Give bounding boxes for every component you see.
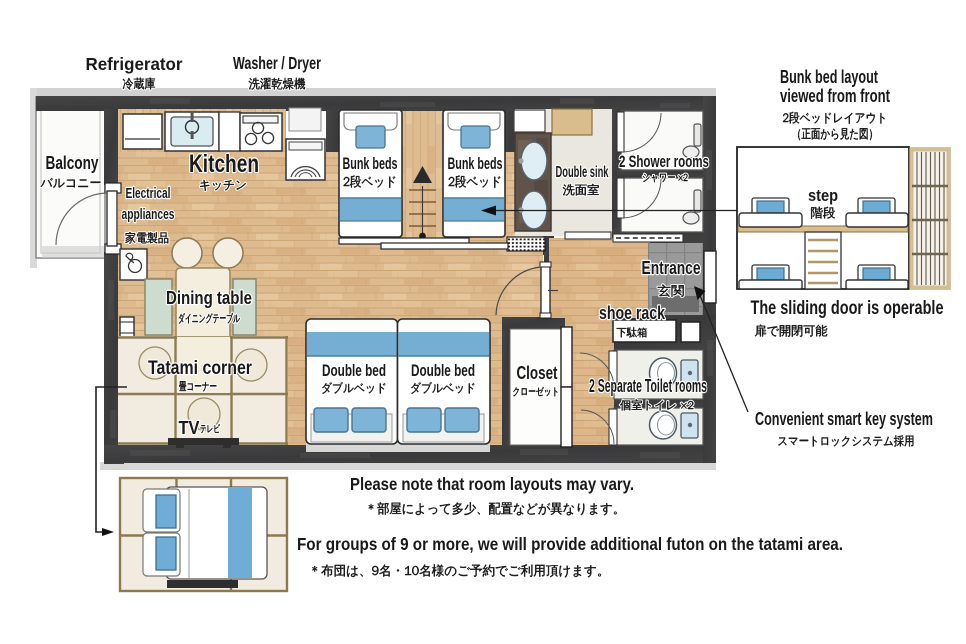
svg-text:Dining table: Dining table [166, 288, 252, 308]
svg-text:Convenient smart key system: Convenient smart key system [755, 409, 933, 429]
svg-text:The sliding door is operable: The sliding door is operable [751, 298, 944, 319]
svg-text:Double sink: Double sink [556, 164, 609, 181]
svg-text:Bunk beds: Bunk beds [343, 154, 398, 173]
svg-text:shoe rack: shoe rack [599, 303, 666, 323]
svg-text:Please note that room layouts: Please note that room layouts may vary. [350, 474, 634, 494]
svg-text:Double bed: Double bed [322, 361, 386, 380]
svg-text:Balcony: Balcony [46, 153, 99, 173]
svg-text:2 Separate Toilet rooms: 2 Separate Toilet rooms [589, 376, 707, 396]
svg-text:2 Shower rooms: 2 Shower rooms [619, 153, 709, 171]
svg-text:For groups of 9 or more, we wi: For groups of 9 or more, we will provide… [297, 534, 843, 554]
svg-text:Electrical: Electrical [126, 186, 171, 202]
svg-text:appliances: appliances [122, 207, 175, 223]
svg-text:TV: TV [179, 418, 200, 438]
svg-text:Entrance: Entrance [642, 258, 701, 278]
svg-text:Closet: Closet [517, 363, 558, 383]
svg-text:Bunk beds: Bunk beds [448, 154, 503, 173]
svg-text:Double bed: Double bed [411, 361, 475, 380]
svg-text:Washer / Dryer: Washer / Dryer [233, 53, 321, 73]
svg-text:step: step [808, 186, 838, 205]
svg-text:viewed from front: viewed from front [780, 86, 890, 106]
svg-text:Refrigerator: Refrigerator [86, 54, 183, 74]
svg-text:Bunk bed layout: Bunk bed layout [780, 67, 878, 87]
svg-text:Tatami corner: Tatami corner [148, 358, 253, 379]
svg-text:Kitchen: Kitchen [189, 150, 259, 178]
